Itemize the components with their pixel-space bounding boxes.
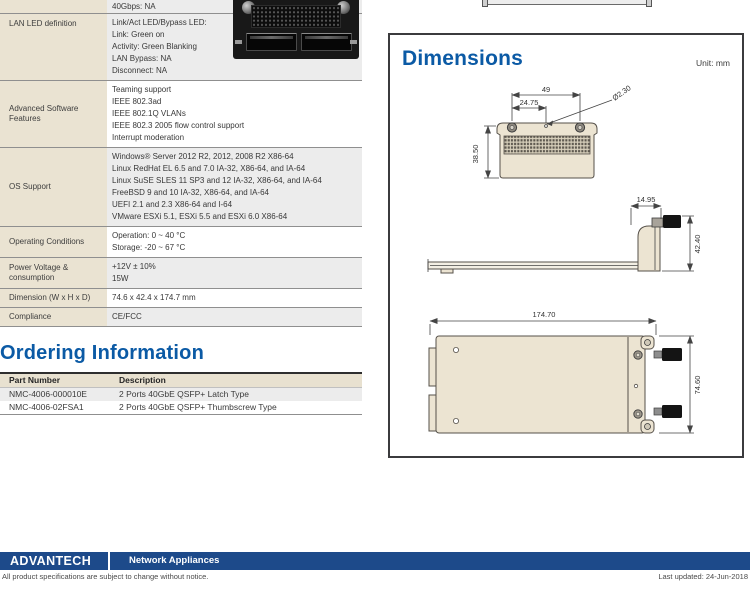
ordering-part-number: NMC-4006-02FSA1 — [0, 401, 115, 414]
footer-bar: ADVANTECH Network Appliances — [0, 552, 750, 570]
qsfp-port — [246, 33, 297, 51]
dim-side-depth: 14.95 — [637, 195, 656, 204]
ordering-description: 2 Ports 40GbE QSFP+ Thumbscrew Type — [115, 401, 362, 414]
footer-disclaimer: All product specifications are subject t… — [2, 572, 208, 581]
dim-front-offset: 24.75 — [520, 98, 539, 107]
spec-row-value: Operation: 0 ~ 40 °CStorage: -20 ~ 67 °C — [107, 227, 362, 257]
spec-row-label: Advanced Software Features — [0, 81, 107, 147]
spec-row: OS SupportWindows® Server 2012 R2, 2012,… — [0, 148, 362, 227]
spec-row: Operating ConditionsOperation: 0 ~ 40 °C… — [0, 227, 362, 258]
dim-front-height: 38.50 — [471, 145, 480, 164]
dimensions-header: Dimensions Unit: mm — [390, 35, 742, 71]
spec-row: Dimension (W x H x D)74.6 x 42.4 x 174.7… — [0, 289, 362, 308]
ordering-row: NMC-4006-02FSA12 Ports 40GbE QSFP+ Thumb… — [0, 401, 362, 414]
dimensions-unit: Unit: mm — [696, 58, 730, 71]
footer-last-updated: Last updated: 24-Jun-2018 — [658, 572, 748, 581]
dim-front-hole: Ø2.30 — [611, 83, 633, 102]
dimensions-title: Dimensions — [402, 47, 523, 71]
footer-divider — [108, 552, 110, 570]
top-view-drawing: 174.70 74.60 — [423, 298, 713, 450]
spec-row: ComplianceCE/FCC — [0, 308, 362, 327]
spec-row-label: OS Support — [0, 148, 107, 226]
product-photo — [233, 0, 359, 59]
ordering-part-number: NMC-4006-000010E — [0, 388, 115, 401]
drawing-endcap — [646, 0, 652, 7]
dimensions-panel: Dimensions Unit: mm 49 24.75 — [388, 33, 744, 458]
dim-top-width: 74.60 — [693, 376, 702, 395]
cut-off-drawing — [483, 0, 651, 5]
spec-row-value: 74.6 x 42.4 x 174.7 mm — [107, 289, 362, 307]
spec-row-label: Power Voltage & consumption — [0, 258, 107, 288]
spec-row: Advanced Software FeaturesTeaming suppor… — [0, 81, 362, 148]
spec-row-label — [0, 0, 107, 13]
ordering-table: Part NumberDescriptionNMC-4006-000010E2 … — [0, 372, 362, 415]
side-view-drawing: 14.95 42.40 — [423, 191, 713, 291]
ordering-header-cell: Description — [115, 374, 362, 387]
qsfp-port — [301, 33, 352, 51]
advantech-logo: ADVANTECH — [10, 552, 91, 570]
footer-series-label: Network Appliances — [129, 552, 219, 570]
spec-row-value: +12V ± 10%15W — [107, 258, 362, 288]
spec-row-label: Compliance — [0, 308, 107, 326]
drawing-endcap — [482, 0, 488, 7]
ordering-title: Ordering Information — [0, 342, 362, 365]
spec-row: Power Voltage & consumption+12V ± 10%15W — [0, 258, 362, 289]
left-column: 40Gbps: NALAN LED definitionLink/Act LED… — [0, 0, 362, 415]
spec-row-label: Dimension (W x H x D) — [0, 289, 107, 307]
datasheet-page: { "spec_table": { "rows": [ {"label": ""… — [0, 0, 750, 591]
ordering-description: 2 Ports 40GbE QSFP+ Latch Type — [115, 388, 362, 401]
spec-row-value: CE/FCC — [107, 308, 362, 326]
port-label — [235, 40, 242, 44]
spec-row-value: Windows® Server 2012 R2, 2012, 2008 R2 X… — [107, 148, 362, 226]
spec-row-label: LAN LED definition — [0, 14, 107, 80]
dim-top-length: 174.70 — [533, 310, 556, 319]
port-label — [350, 40, 357, 44]
spec-row-label: Operating Conditions — [0, 227, 107, 257]
ordering-header-cell: Part Number — [0, 374, 115, 387]
spec-row-value: Teaming supportIEEE 802.3adIEEE 802.1Q V… — [107, 81, 362, 147]
dim-side-height: 42.40 — [693, 235, 702, 254]
dim-front-width: 49 — [542, 85, 550, 94]
vent-grid — [251, 5, 341, 28]
ordering-row: NMC-4006-000010E2 Ports 40GbE QSFP+ Latc… — [0, 388, 362, 401]
ordering-header-row: Part NumberDescription — [0, 374, 362, 388]
front-view-drawing: 49 24.75 Ø2.30 38.50 — [440, 81, 720, 199]
